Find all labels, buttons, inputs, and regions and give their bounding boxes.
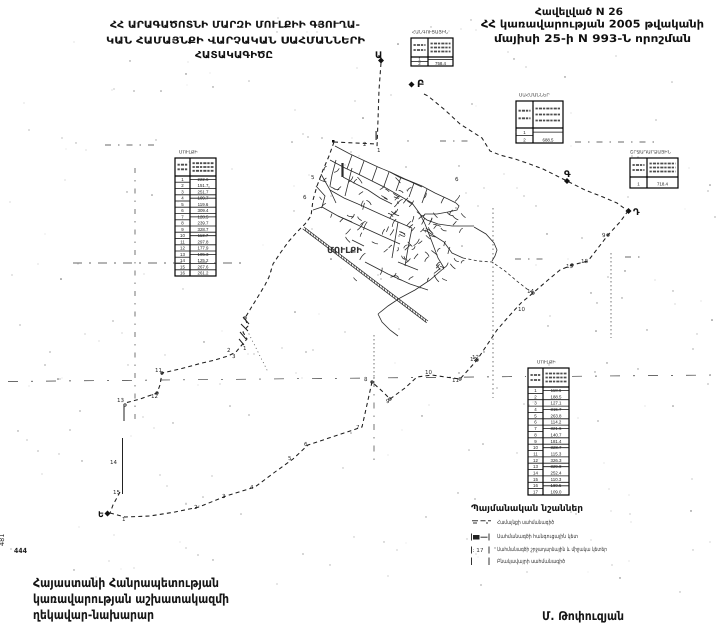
svg-text:326.3: 326.3 — [551, 458, 563, 463]
svg-text:239.7: 239.7 — [198, 221, 210, 226]
svg-text:329.8: 329.8 — [551, 464, 563, 469]
svg-text:263.8: 263.8 — [551, 413, 563, 418]
svg-text:125.2: 125.2 — [198, 258, 210, 263]
svg-text:14: 14 — [180, 258, 185, 263]
svg-text:267.6: 267.6 — [198, 264, 210, 269]
svg-text:309.4: 309.4 — [198, 208, 210, 213]
svg-text:140.7: 140.7 — [551, 432, 563, 437]
svg-text:321.6: 321.6 — [551, 426, 563, 431]
svg-text:328.7: 328.7 — [198, 227, 210, 232]
svg-text:10: 10 — [180, 233, 185, 238]
svg-text:718.4: 718.4 — [657, 182, 669, 187]
svg-text:128.5: 128.5 — [198, 214, 210, 219]
svg-text:118.6: 118.6 — [551, 388, 562, 393]
svg-text:151.7: 151.7 — [198, 183, 210, 188]
svg-text:328.7: 328.7 — [551, 445, 563, 450]
svg-text:252.4: 252.4 — [551, 471, 563, 476]
svg-text:105.3: 105.3 — [198, 252, 210, 257]
svg-text:17: 17 — [533, 490, 538, 495]
svg-text:181.4: 181.4 — [551, 439, 563, 444]
svg-text:297.8: 297.8 — [198, 239, 210, 244]
svg-text:315.7: 315.7 — [551, 407, 563, 412]
svg-text:16: 16 — [180, 271, 185, 276]
svg-text:14: 14 — [533, 471, 538, 476]
svg-text:15: 15 — [180, 264, 185, 269]
svg-text:114.2: 114.2 — [551, 420, 562, 425]
svg-text:12: 12 — [533, 458, 538, 463]
svg-text:109.7: 109.7 — [198, 196, 210, 201]
svg-text:10: 10 — [533, 445, 538, 450]
svg-text:188.5: 188.5 — [551, 394, 563, 399]
svg-text:119.6: 119.6 — [198, 202, 209, 207]
svg-text:115.3: 115.3 — [551, 452, 562, 457]
svg-text:758.4: 758.4 — [435, 61, 447, 66]
svg-text:12: 12 — [180, 246, 185, 251]
svg-text:11: 11 — [533, 452, 538, 457]
svg-text:177.9: 177.9 — [198, 246, 210, 251]
svg-text:109.0: 109.0 — [551, 490, 563, 495]
svg-text:113.7: 113.7 — [198, 233, 209, 238]
svg-text:261.2: 261.2 — [198, 271, 210, 276]
svg-text:13: 13 — [180, 252, 185, 257]
svg-text:13: 13 — [533, 464, 538, 469]
svg-text:16: 16 — [533, 483, 538, 488]
svg-text:110.3: 110.3 — [551, 477, 562, 482]
svg-text:688.5: 688.5 — [543, 137, 555, 142]
svg-text:11: 11 — [180, 239, 185, 244]
svg-text:251.7: 251.7 — [198, 189, 210, 194]
svg-text:180.5: 180.5 — [551, 483, 563, 488]
svg-text:127.1: 127.1 — [551, 401, 563, 406]
svg-text:222.6: 222.6 — [198, 177, 210, 182]
svg-text:15: 15 — [533, 477, 538, 482]
